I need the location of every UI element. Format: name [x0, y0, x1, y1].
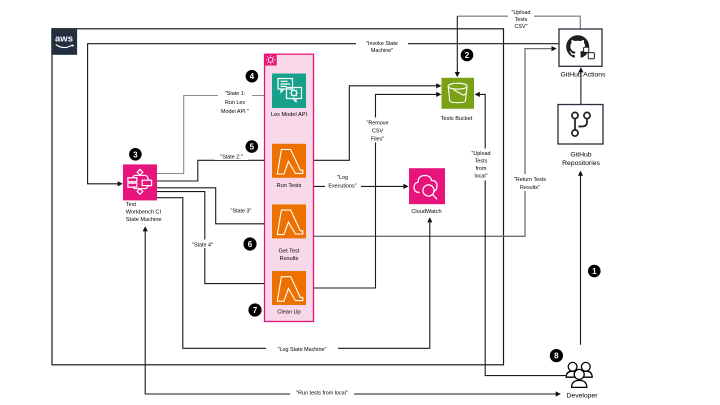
- svg-text:"Log State Machine": "Log State Machine": [278, 347, 327, 353]
- svg-text:Machine": Machine": [371, 48, 393, 54]
- svg-text:State Machine: State Machine: [126, 217, 162, 223]
- svg-text:local": local": [474, 174, 487, 180]
- svg-text:6: 6: [248, 240, 253, 249]
- svg-text:3: 3: [133, 150, 138, 159]
- svg-text:"State 3": "State 3": [231, 209, 252, 215]
- svg-text:Clean Up: Clean Up: [277, 310, 300, 316]
- svg-text:Tests: Tests: [475, 159, 488, 165]
- svg-text:GitHub: GitHub: [570, 152, 591, 159]
- svg-text:5: 5: [250, 143, 255, 152]
- svg-text:"Remove: "Remove: [367, 121, 389, 127]
- svg-text:8: 8: [554, 352, 559, 361]
- svg-text:Results": Results": [520, 185, 540, 191]
- svg-text:CloudWatch: CloudWatch: [411, 209, 441, 215]
- svg-text:"Upload: "Upload: [472, 151, 491, 157]
- svg-text:GitHub Actions: GitHub Actions: [561, 72, 607, 79]
- svg-text:Get Test: Get Test: [279, 249, 300, 255]
- svg-text:"State 2:": "State 2:": [220, 154, 242, 160]
- svg-text:Tests Bucket: Tests Bucket: [441, 116, 473, 122]
- svg-text:Lex Model API: Lex Model API: [271, 112, 308, 118]
- svg-text:"State 4": "State 4": [192, 243, 213, 249]
- svg-text:"Upload: "Upload: [512, 10, 531, 16]
- svg-text:Tests: Tests: [515, 17, 528, 23]
- svg-text:"Log: "Log: [337, 175, 348, 181]
- svg-text:Developer: Developer: [567, 393, 599, 400]
- svg-text:Run Lex: Run Lex: [225, 100, 245, 106]
- svg-text:aws: aws: [55, 34, 73, 45]
- svg-text:Model API ": Model API ": [221, 109, 249, 115]
- svg-text:"State 1:: "State 1:: [225, 91, 246, 97]
- svg-text:Test: Test: [126, 202, 137, 208]
- svg-text:7: 7: [253, 306, 258, 315]
- svg-text:"Invoke State: "Invoke State: [366, 41, 398, 47]
- svg-text:"Return Tests: "Return Tests: [514, 177, 546, 183]
- svg-text:Repositories: Repositories: [562, 160, 600, 167]
- svg-text:Executions": Executions": [328, 184, 356, 190]
- svg-text:"Run tests from local": "Run tests from local": [296, 391, 348, 397]
- svg-text:CSV": CSV": [515, 24, 528, 30]
- svg-text:from: from: [476, 166, 487, 172]
- svg-text:2: 2: [465, 51, 470, 60]
- svg-text:Run Tests: Run Tests: [277, 183, 302, 189]
- svg-text:CSV: CSV: [372, 129, 383, 135]
- svg-text:Workbench CI: Workbench CI: [126, 209, 162, 215]
- svg-text:Files": Files": [371, 137, 384, 143]
- svg-text:4: 4: [250, 72, 255, 81]
- svg-text:Results: Results: [280, 256, 299, 262]
- svg-text:1: 1: [592, 267, 597, 276]
